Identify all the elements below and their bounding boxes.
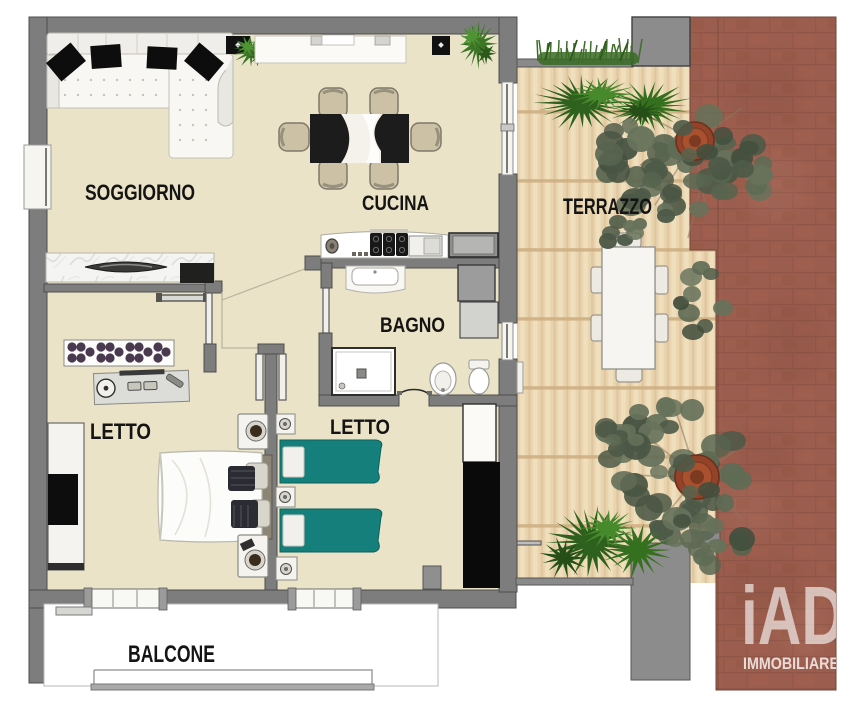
- svg-text:IMMOBILIARE: IMMOBILIARE: [743, 655, 839, 673]
- svg-text:LETTO: LETTO: [330, 416, 390, 439]
- svg-text:iAD: iAD: [741, 569, 845, 662]
- svg-text:CUCINA: CUCINA: [362, 192, 429, 215]
- svg-text:LETTO: LETTO: [90, 419, 151, 444]
- svg-text:SOGGIORNO: SOGGIORNO: [85, 180, 195, 205]
- svg-text:BALCONE: BALCONE: [128, 641, 215, 668]
- svg-text:BAGNO: BAGNO: [380, 314, 445, 337]
- svg-text:TERRAZZO: TERRAZZO: [563, 194, 652, 219]
